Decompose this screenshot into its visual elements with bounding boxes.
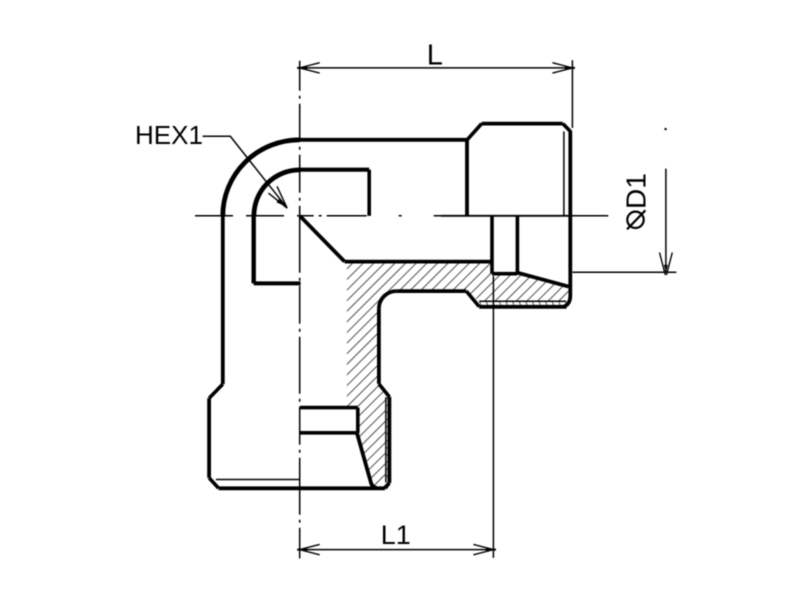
svg-text:L: L [427, 39, 443, 71]
svg-text:D1: D1 [620, 173, 651, 209]
svg-text:HEX1: HEX1 [135, 120, 203, 150]
svg-text:L1: L1 [381, 520, 411, 550]
